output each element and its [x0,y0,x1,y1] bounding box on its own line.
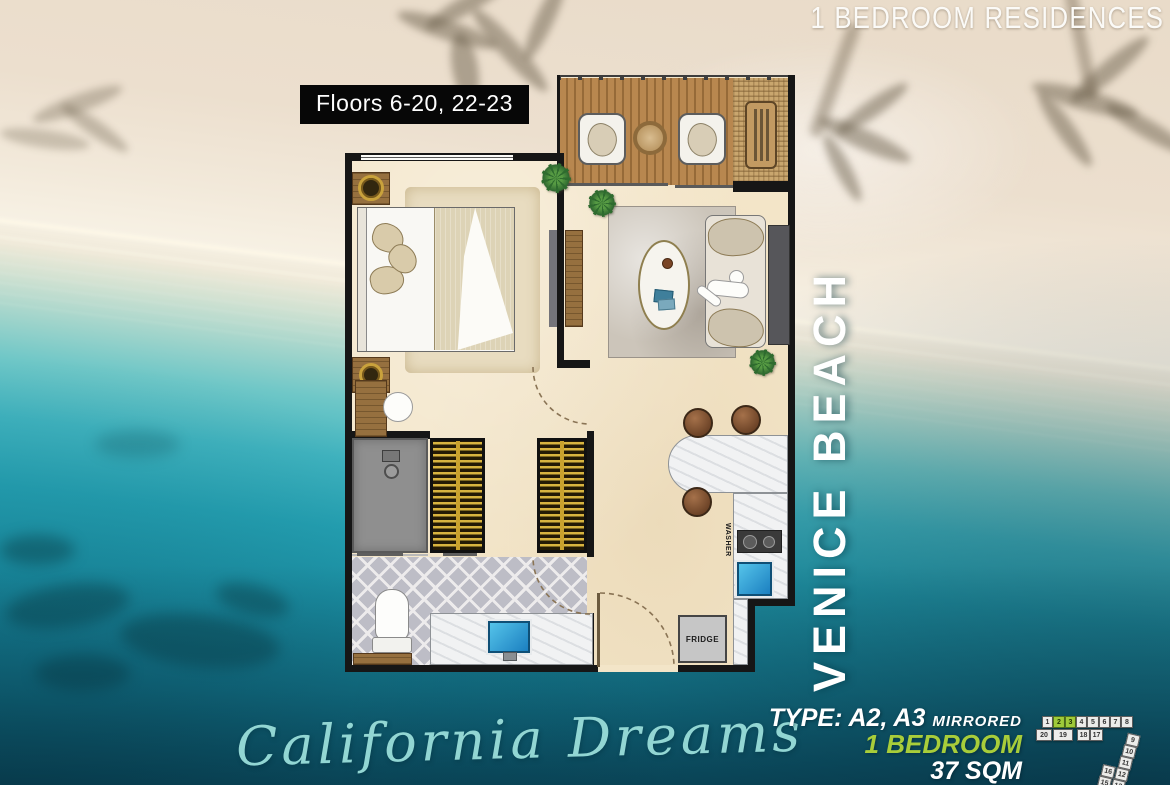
brochure-page: WASHER FRIDGE 1 BEDROOM RESIDENCES Floor… [0,0,1170,785]
venice-beach-label: VENICE BEACH [804,292,882,692]
spec-mirrored: MIRRORED [932,713,1022,730]
floors-badge: Floors 6-20, 22-23 [300,85,529,124]
floor-plan: WASHER FRIDGE [345,75,800,690]
spec-type: TYPE: A2, A3 [769,704,926,732]
key-plan-unit: 3 [1065,716,1076,728]
key-plan-unit: 5 [1087,716,1099,728]
floor-plan-unit: WASHER FRIDGE [345,75,800,690]
spec-type-line: TYPE: A2, A3 MIRRORED [769,705,1022,731]
door-swing-arcs [345,75,800,690]
spec-block: TYPE: A2, A3 MIRRORED 1 BEDROOM 37 SQM [769,705,1022,784]
building-key-plan: 1 2 3 4 5 6 7 8 20 19 18 17 9 10 11 12 1… [1033,703,1170,785]
key-plan-unit: 2 [1053,716,1065,728]
spec-area: 37 SQM [769,758,1022,784]
spec-bedroom: 1 BEDROOM [769,731,1022,758]
page-title: 1 BEDROOM RESIDENCES [810,0,1164,36]
key-plan-unit: 8 [1121,716,1133,728]
key-plan-unit: 15 [1097,776,1112,785]
key-plan-unit: 19 [1053,729,1073,741]
key-plan-unit: 1 [1042,716,1053,728]
key-plan-unit: 20 [1036,729,1052,741]
key-plan-unit: 4 [1076,716,1087,728]
key-plan-unit: 18 [1077,729,1090,741]
